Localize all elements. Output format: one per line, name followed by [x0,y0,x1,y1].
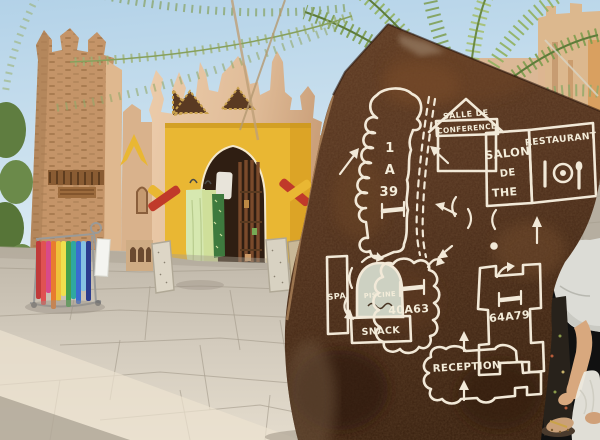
label-rooms-40-63: 40A63 [388,302,430,317]
arched-niche [137,188,147,214]
stone-slab-left [152,241,174,293]
dark-green-dress [212,194,225,258]
label-snack: SNACK [361,325,400,338]
label-salon-line2: DE [499,167,516,180]
scene-svg: 1 A 39 SALLE DE CONFERENCE SALON DE THE … [0,0,600,440]
label-rooms1-line1: 1 [385,141,394,156]
label-spa: SPA [327,290,347,302]
label-rooms1-line2: A [385,163,395,178]
carved-stone-bench [126,240,153,271]
label-rooms1-line3: 39 [380,185,399,200]
photo-hotel-courtyard-with-map-stone: 1 A 39 SALLE DE CONFERENCE SALON DE THE … [0,0,600,440]
label-salon-line3: THE [492,185,518,200]
white-towel [95,239,111,277]
mid-wall [120,104,152,252]
